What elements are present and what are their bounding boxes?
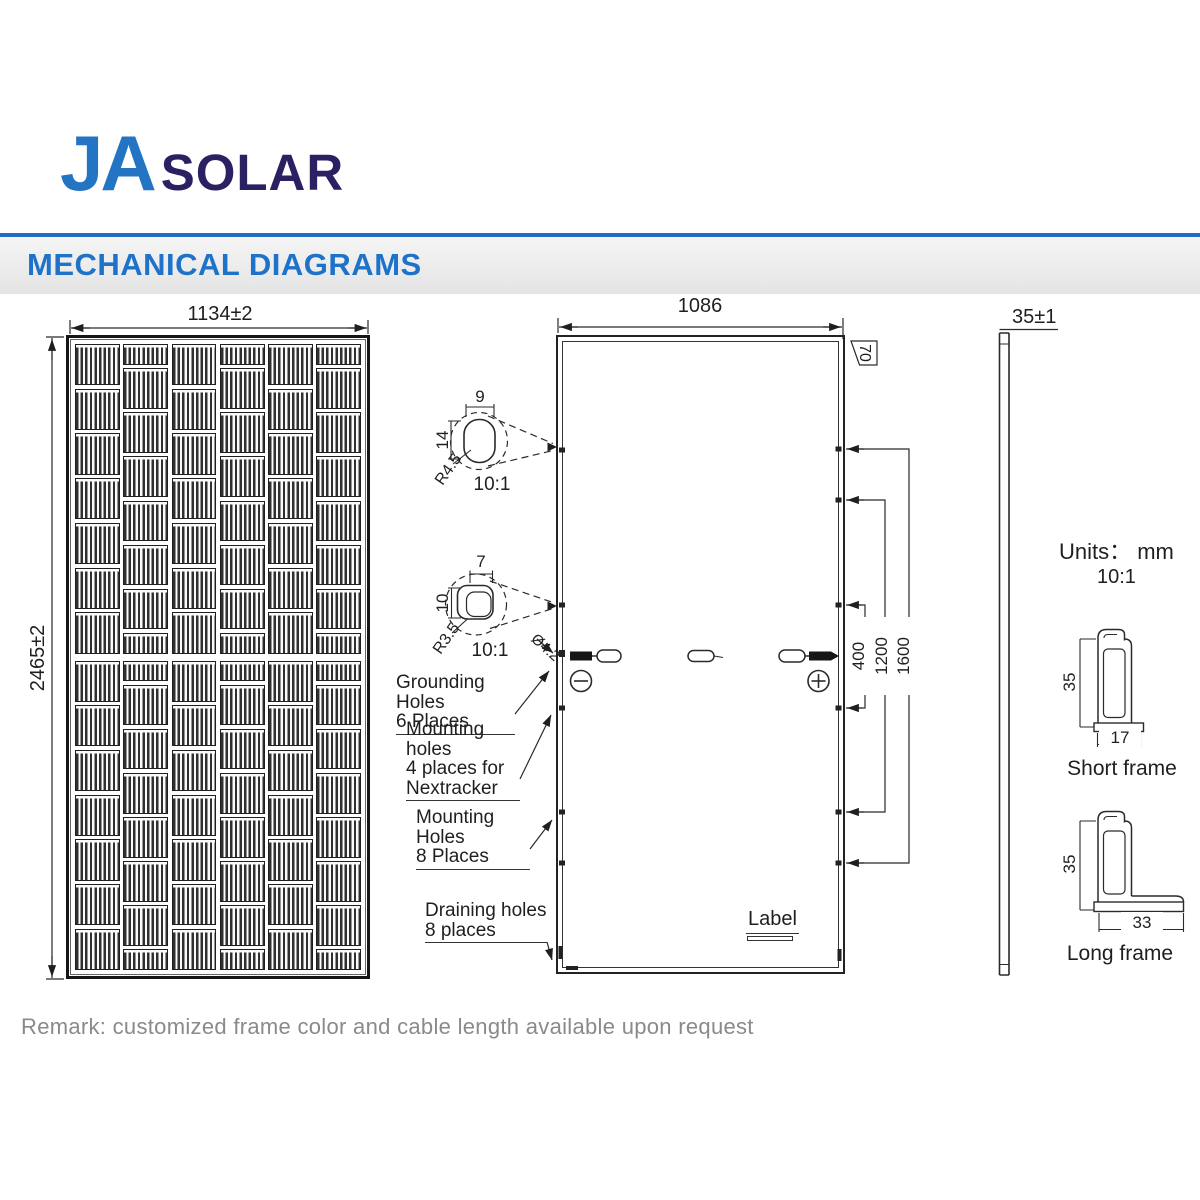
callout-line: Mounting holes xyxy=(406,720,520,759)
corner-dim-70: 70 xyxy=(853,334,875,372)
detail-bottom-scale: 10:1 xyxy=(464,640,516,662)
callout-line: Nextracker xyxy=(406,779,520,799)
callout-line: 8 Places xyxy=(416,847,530,867)
callout-line: Mounting Holes xyxy=(416,808,530,847)
dim-1600: 1600 xyxy=(893,617,915,695)
short-frame-label: Short frame xyxy=(1056,757,1188,781)
mechanical-diagram-page: JA SOLAR MECHANICAL DIAGRAMS xyxy=(0,0,1200,1200)
side-width-dim: 35±1 xyxy=(1012,306,1056,328)
plus-icon xyxy=(808,671,829,692)
dim-400: 400 xyxy=(848,617,870,695)
callout-nextracker-holes: Mounting holes 4 places for Nextracker xyxy=(406,720,520,801)
back-view-dimensions xyxy=(558,318,909,863)
detail-top-width-dim: 9 xyxy=(469,386,491,408)
callout-line: Grounding Holes xyxy=(396,673,515,712)
label-tag: Label xyxy=(746,908,799,934)
detail-top-scale: 10:1 xyxy=(466,474,518,496)
units-note: Units： mm xyxy=(1059,534,1174,566)
side-view-drawing xyxy=(1000,330,1059,976)
units-scale-note: 10:1 xyxy=(1097,566,1136,589)
callout-line: 8 places xyxy=(425,921,547,941)
front-view-dimensions xyxy=(46,320,368,979)
short-frame-width-dim: 17 xyxy=(1099,727,1141,749)
front-width-dim: 1134±2 xyxy=(170,303,270,325)
long-frame-label: Long frame xyxy=(1054,942,1186,966)
junction-boxes xyxy=(570,650,839,662)
hole-marks xyxy=(559,447,842,971)
front-height-dim: 2465±2 xyxy=(27,607,49,709)
detail-bottom-width-dim: 7 xyxy=(470,551,492,573)
callout-mounting-holes: Mounting Holes 8 Places xyxy=(416,808,530,870)
dim-1200: 1200 xyxy=(871,617,893,695)
minus-icon xyxy=(571,671,592,692)
remark-note: Remark: customized frame color and cable… xyxy=(21,1014,754,1040)
label-strip xyxy=(747,936,793,941)
long-frame-width-dim: 33 xyxy=(1121,912,1163,934)
long-frame-height-dim: 35 xyxy=(1059,843,1081,885)
callout-draining-holes: Draining holes 8 places xyxy=(425,901,547,943)
short-frame-height-dim: 35 xyxy=(1059,661,1081,703)
callout-line: 4 places for xyxy=(406,759,520,779)
back-width-dim: 1086 xyxy=(650,295,750,317)
callout-line: Draining holes xyxy=(425,901,547,921)
